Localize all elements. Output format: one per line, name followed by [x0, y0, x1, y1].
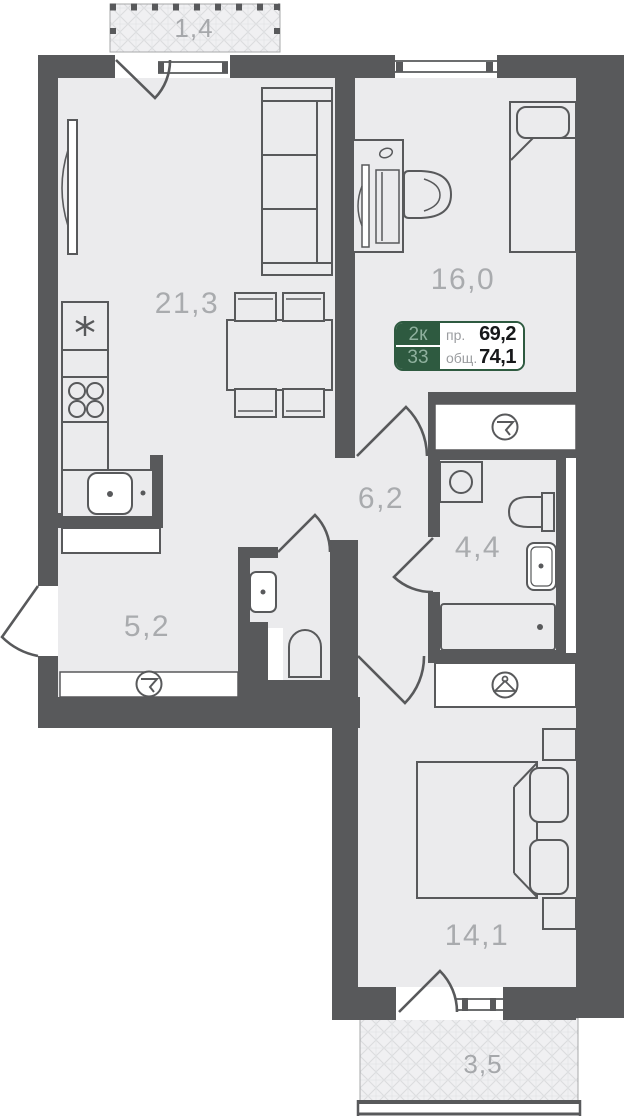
bathtub — [441, 604, 555, 650]
unit-card-divider — [396, 345, 440, 347]
room-label-corridor: 5,2 — [124, 610, 170, 643]
sofa — [262, 88, 332, 275]
desk-chair — [404, 171, 451, 218]
kitchen-sink — [62, 470, 153, 517]
unit-info-card: 2к 33 пр. 69,2 общ. 74,1 — [394, 321, 525, 371]
room-label-bedroom-1: 16,0 — [431, 263, 495, 296]
vent-shaft-bathroom — [435, 404, 576, 450]
floor-plan: 21,3 16,0 6,2 4,4 5,2 14,1 1,4 3,5 — [0, 0, 624, 1118]
unit-rooms-count: 2к — [396, 323, 440, 346]
room-label-balcony-bottom: 3,5 — [463, 1049, 502, 1079]
living-area-label: пр. — [446, 327, 465, 343]
corridor-furniture — [62, 528, 160, 553]
living-area-value: 69,2 — [479, 323, 516, 346]
single-bed — [510, 102, 576, 252]
dining-table — [227, 320, 332, 390]
entry-door — [2, 586, 38, 656]
total-area-row: общ. 74,1 — [440, 346, 523, 369]
nightstand — [543, 729, 576, 760]
nightstand — [543, 898, 576, 929]
wc-toilet — [289, 630, 321, 677]
bedroom-2-furniture — [417, 663, 576, 929]
wc-sink — [250, 572, 276, 612]
room-label-bedroom-2: 14,1 — [445, 919, 509, 952]
unit-number: 33 — [396, 346, 440, 369]
washing-machine — [440, 462, 482, 502]
bathroom-sink — [527, 543, 556, 590]
total-area-label: общ. — [446, 350, 477, 366]
room-label-hallway: 6,2 — [358, 482, 404, 515]
total-area-value: 74,1 — [479, 346, 516, 369]
room-label-living: 21,3 — [155, 287, 219, 320]
toilet — [509, 493, 554, 531]
living-area-row: пр. 69,2 — [440, 323, 523, 346]
room-label-bathroom: 4,4 — [455, 531, 501, 564]
desk — [353, 140, 403, 252]
unit-card-areas-panel: пр. 69,2 общ. 74,1 — [440, 323, 523, 369]
unit-card-green-panel: 2к 33 — [396, 323, 440, 369]
hall-cabinet — [62, 528, 160, 553]
room-label-balcony-top: 1,4 — [174, 13, 213, 43]
wardrobe — [435, 663, 576, 707]
vent-shaft-corridor — [60, 672, 238, 698]
